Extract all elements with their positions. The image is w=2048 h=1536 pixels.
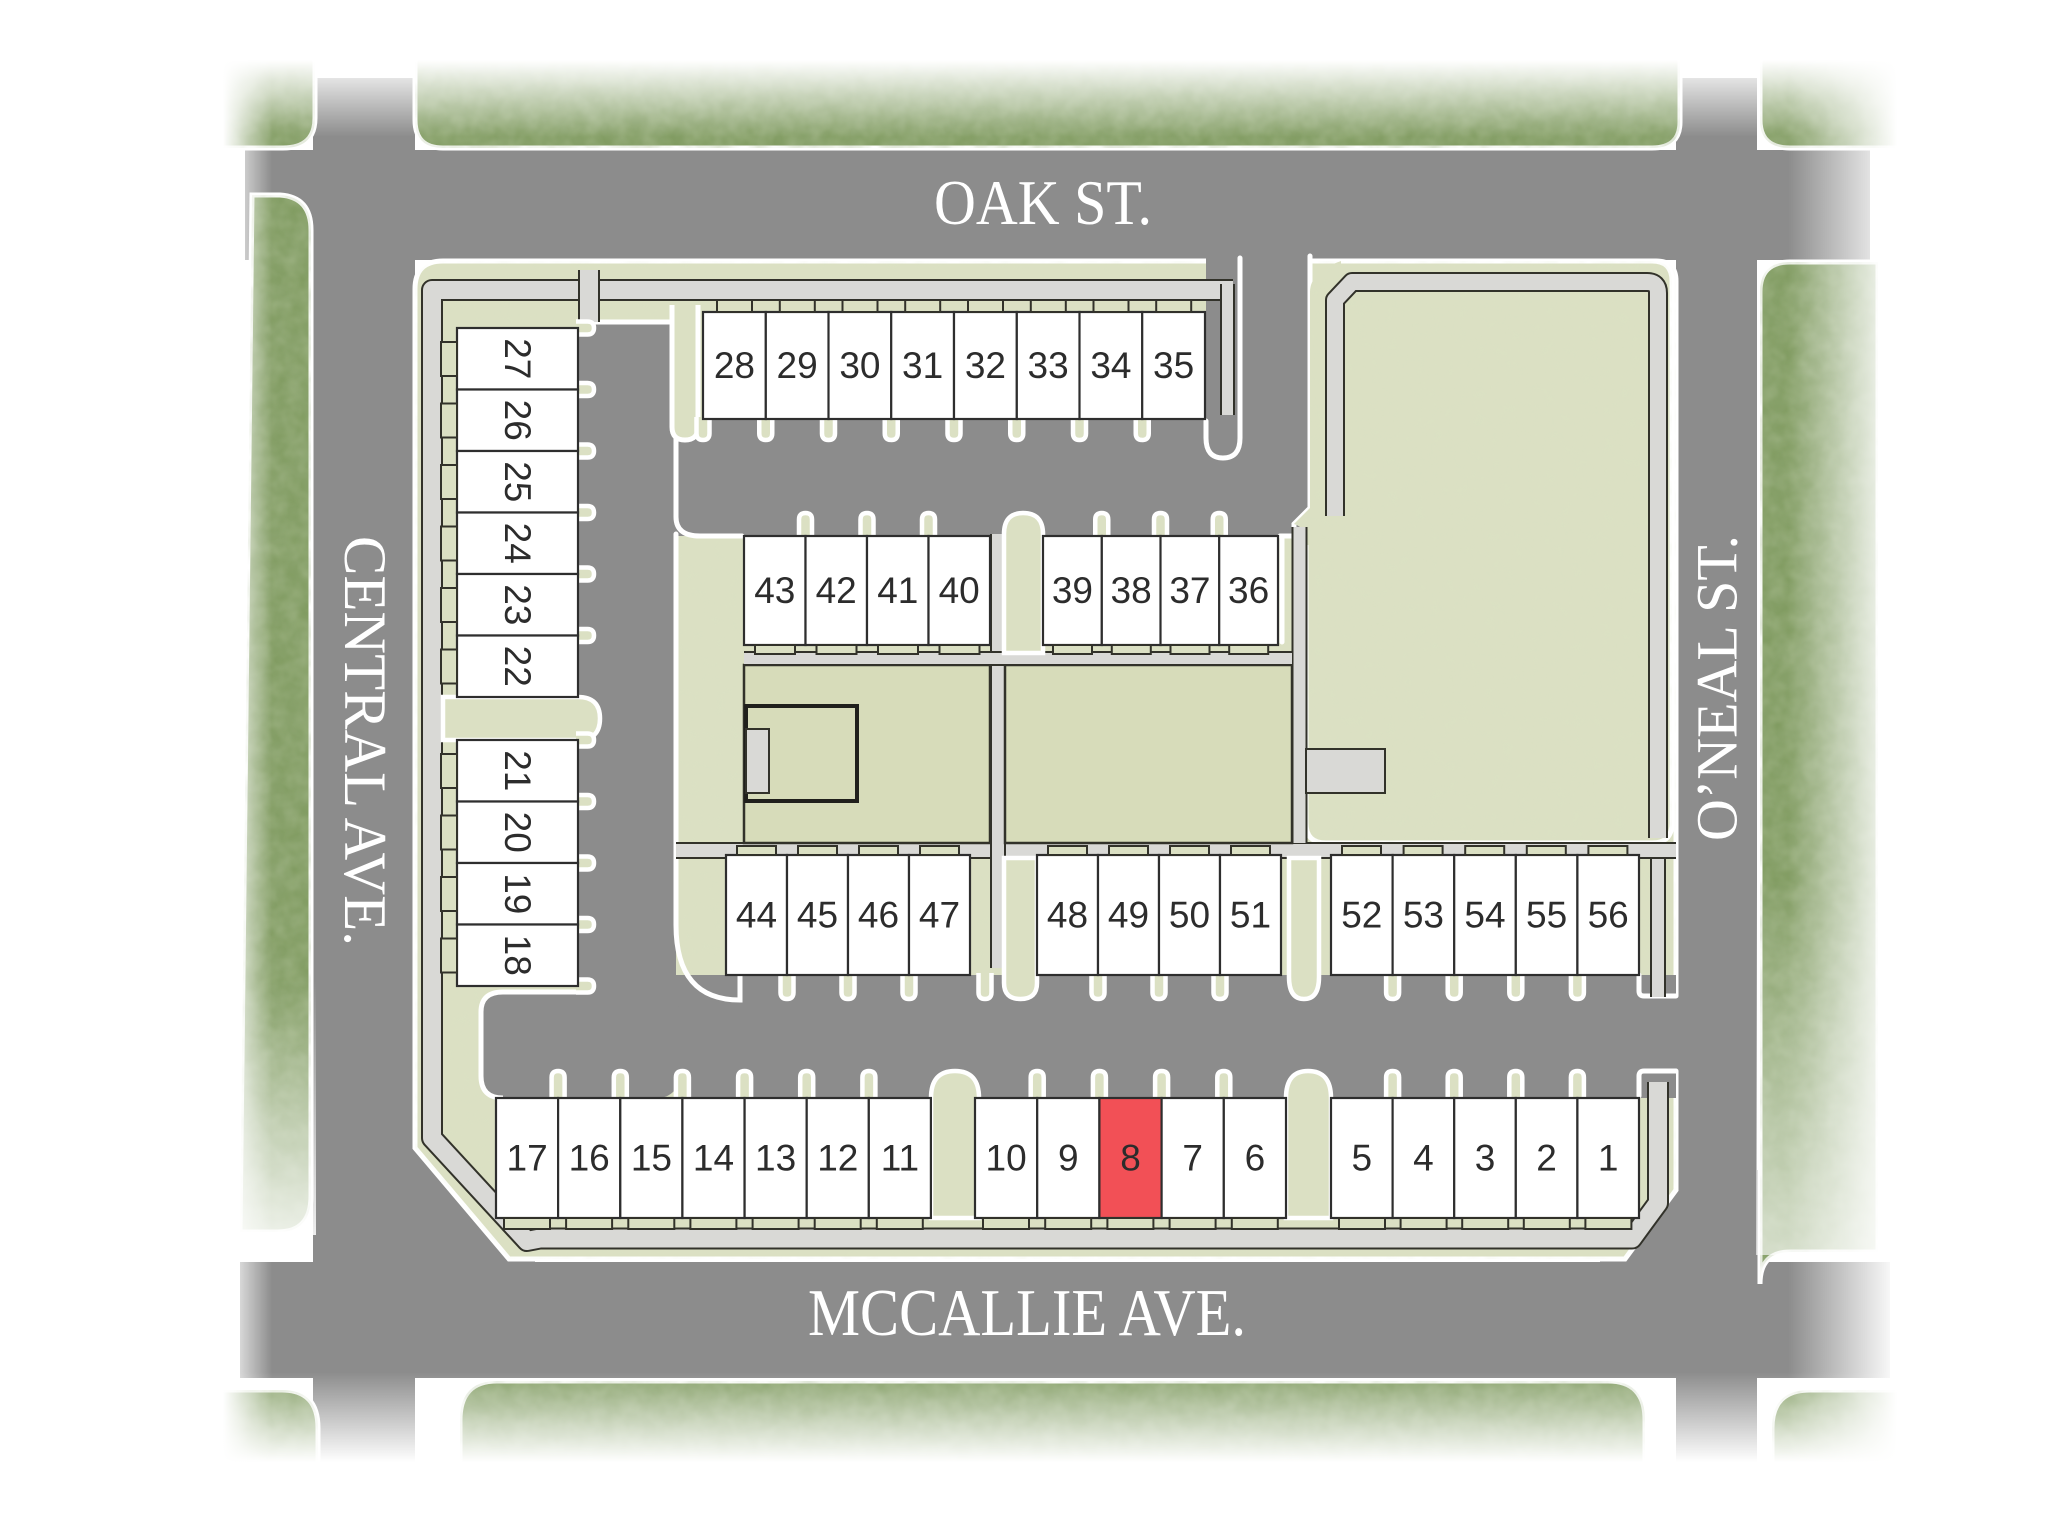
svg-text:56: 56 <box>1588 895 1629 936</box>
svg-text:O’NEAL ST.: O’NEAL ST. <box>1685 535 1750 841</box>
svg-text:21: 21 <box>497 750 538 791</box>
svg-text:29: 29 <box>777 345 818 386</box>
svg-text:19: 19 <box>497 873 538 914</box>
svg-text:OAK ST.: OAK ST. <box>934 167 1152 238</box>
svg-text:7: 7 <box>1182 1138 1203 1179</box>
svg-text:41: 41 <box>877 570 918 611</box>
svg-text:MCCALLIE AVE.: MCCALLIE AVE. <box>808 1276 1246 1350</box>
svg-text:2: 2 <box>1536 1138 1557 1179</box>
svg-text:5: 5 <box>1352 1138 1373 1179</box>
svg-text:1: 1 <box>1598 1138 1619 1179</box>
svg-text:8: 8 <box>1120 1138 1141 1179</box>
svg-text:46: 46 <box>858 895 899 936</box>
svg-text:51: 51 <box>1230 895 1271 936</box>
svg-text:55: 55 <box>1526 895 1567 936</box>
svg-text:23: 23 <box>497 584 538 625</box>
svg-text:30: 30 <box>839 345 880 386</box>
svg-text:54: 54 <box>1464 895 1505 936</box>
svg-text:25: 25 <box>497 461 538 502</box>
svg-text:49: 49 <box>1108 895 1149 936</box>
svg-text:24: 24 <box>497 523 538 564</box>
svg-text:22: 22 <box>497 646 538 687</box>
svg-text:37: 37 <box>1169 570 1210 611</box>
svg-text:40: 40 <box>939 570 980 611</box>
svg-text:4: 4 <box>1413 1138 1434 1179</box>
svg-text:6: 6 <box>1245 1138 1266 1179</box>
svg-text:28: 28 <box>714 345 755 386</box>
svg-text:48: 48 <box>1047 895 1088 936</box>
svg-text:34: 34 <box>1090 345 1131 386</box>
svg-text:47: 47 <box>919 895 960 936</box>
svg-text:52: 52 <box>1341 895 1382 936</box>
svg-text:CENTRAL AVE.: CENTRAL AVE. <box>332 536 398 946</box>
svg-text:17: 17 <box>507 1138 548 1179</box>
svg-text:38: 38 <box>1111 570 1152 611</box>
svg-text:42: 42 <box>816 570 857 611</box>
svg-text:11: 11 <box>881 1138 919 1179</box>
svg-text:44: 44 <box>736 895 777 936</box>
svg-text:53: 53 <box>1403 895 1444 936</box>
svg-text:39: 39 <box>1052 570 1093 611</box>
svg-text:9: 9 <box>1058 1138 1079 1179</box>
svg-text:15: 15 <box>631 1138 672 1179</box>
svg-text:18: 18 <box>497 935 538 976</box>
svg-text:27: 27 <box>497 338 538 379</box>
svg-text:31: 31 <box>902 345 943 386</box>
svg-text:33: 33 <box>1028 345 1069 386</box>
svg-text:50: 50 <box>1169 895 1210 936</box>
svg-text:26: 26 <box>497 400 538 441</box>
svg-text:10: 10 <box>986 1138 1027 1179</box>
svg-text:45: 45 <box>797 895 838 936</box>
svg-text:36: 36 <box>1228 570 1269 611</box>
svg-text:16: 16 <box>569 1138 610 1179</box>
svg-text:35: 35 <box>1153 345 1194 386</box>
svg-text:32: 32 <box>965 345 1006 386</box>
svg-text:3: 3 <box>1475 1138 1496 1179</box>
svg-text:13: 13 <box>755 1138 796 1179</box>
svg-text:43: 43 <box>754 570 795 611</box>
svg-text:14: 14 <box>693 1138 734 1179</box>
svg-text:12: 12 <box>817 1138 858 1179</box>
svg-text:20: 20 <box>497 812 538 853</box>
